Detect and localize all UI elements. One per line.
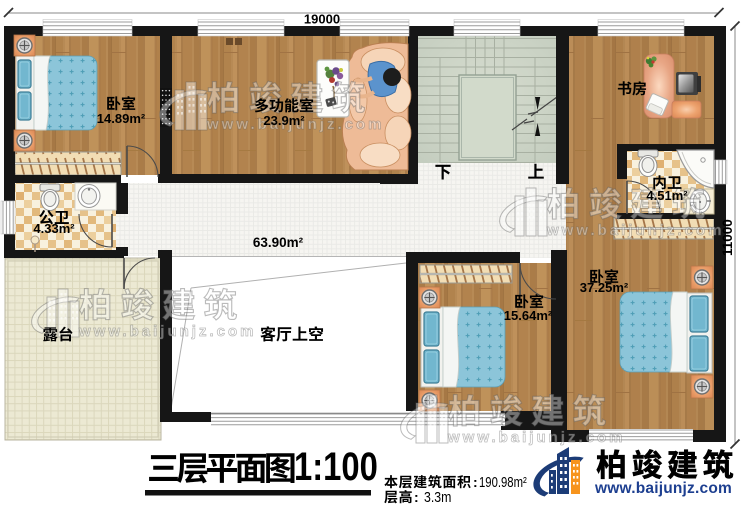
svg-text:63.90m²: 63.90m² [253,235,304,250]
svg-text:www.baijunjz.com: www.baijunjz.com [447,429,625,446]
svg-text::: : [473,474,478,490]
svg-text:www.baijunjz.com: www.baijunjz.com [78,323,256,340]
svg-text:4.51m²: 4.51m² [646,188,688,203]
svg-text:www.baijunjz.com: www.baijunjz.com [594,480,732,497]
svg-text:14.89m²: 14.89m² [97,111,146,126]
svg-text:1:100: 1:100 [294,444,378,489]
svg-text:19000: 19000 [304,12,340,27]
svg-text:4.33m²: 4.33m² [33,221,75,236]
svg-text:190.98m²: 190.98m² [479,474,527,491]
svg-text:37.25m²: 37.25m² [580,280,629,295]
svg-text:15.64m²: 15.64m² [504,308,553,323]
svg-text:www.baijunjz.com: www.baijunjz.com [546,222,724,239]
svg-text:3.3m: 3.3m [424,489,451,505]
svg-text::: : [414,489,419,505]
svg-text:23.9m²: 23.9m² [263,113,305,128]
